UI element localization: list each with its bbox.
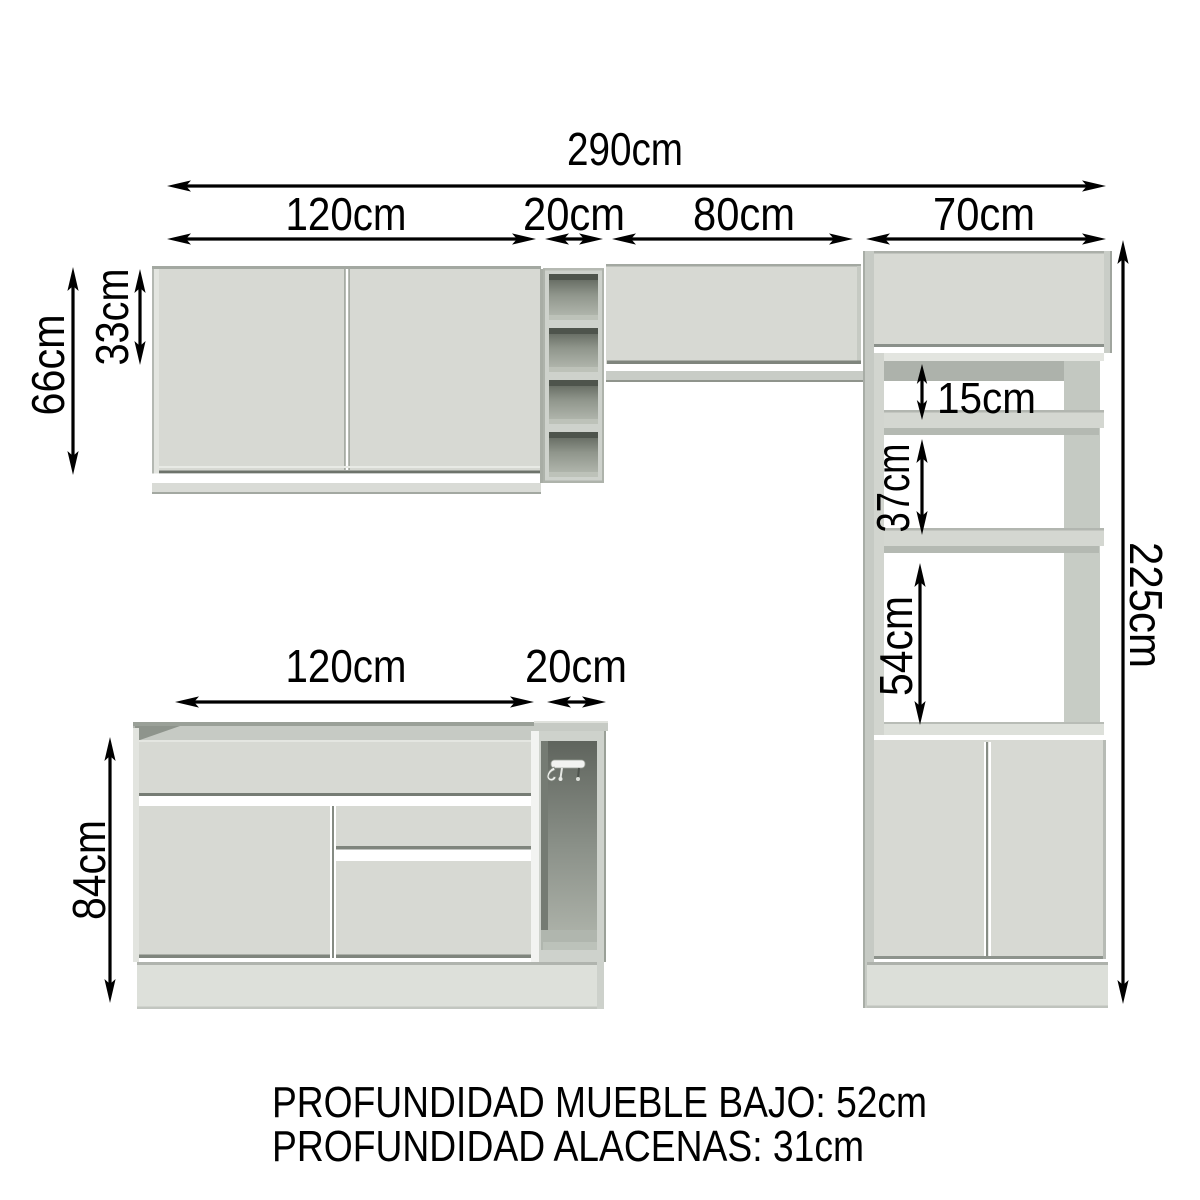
svg-text:120cm: 120cm: [286, 640, 407, 692]
svg-text:84cm: 84cm: [63, 820, 115, 920]
svg-text:70cm: 70cm: [933, 188, 1035, 240]
svg-text:225cm: 225cm: [1120, 542, 1172, 668]
svg-text:80cm: 80cm: [693, 188, 795, 240]
svg-text:PROFUNDIDAD MUEBLE BAJO: 52cm: PROFUNDIDAD MUEBLE BAJO: 52cm: [272, 1078, 927, 1127]
svg-text:120cm: 120cm: [286, 188, 407, 240]
svg-text:20cm: 20cm: [523, 188, 625, 240]
svg-text:290cm: 290cm: [567, 123, 683, 175]
svg-text:33cm: 33cm: [86, 269, 138, 366]
svg-text:15cm: 15cm: [937, 374, 1036, 423]
svg-text:37cm: 37cm: [867, 444, 919, 533]
svg-text:54cm: 54cm: [870, 596, 922, 696]
svg-text:20cm: 20cm: [525, 640, 627, 692]
svg-text:66cm: 66cm: [22, 315, 74, 416]
svg-text:PROFUNDIDAD ALACENAS: 31cm: PROFUNDIDAD ALACENAS: 31cm: [272, 1122, 864, 1171]
